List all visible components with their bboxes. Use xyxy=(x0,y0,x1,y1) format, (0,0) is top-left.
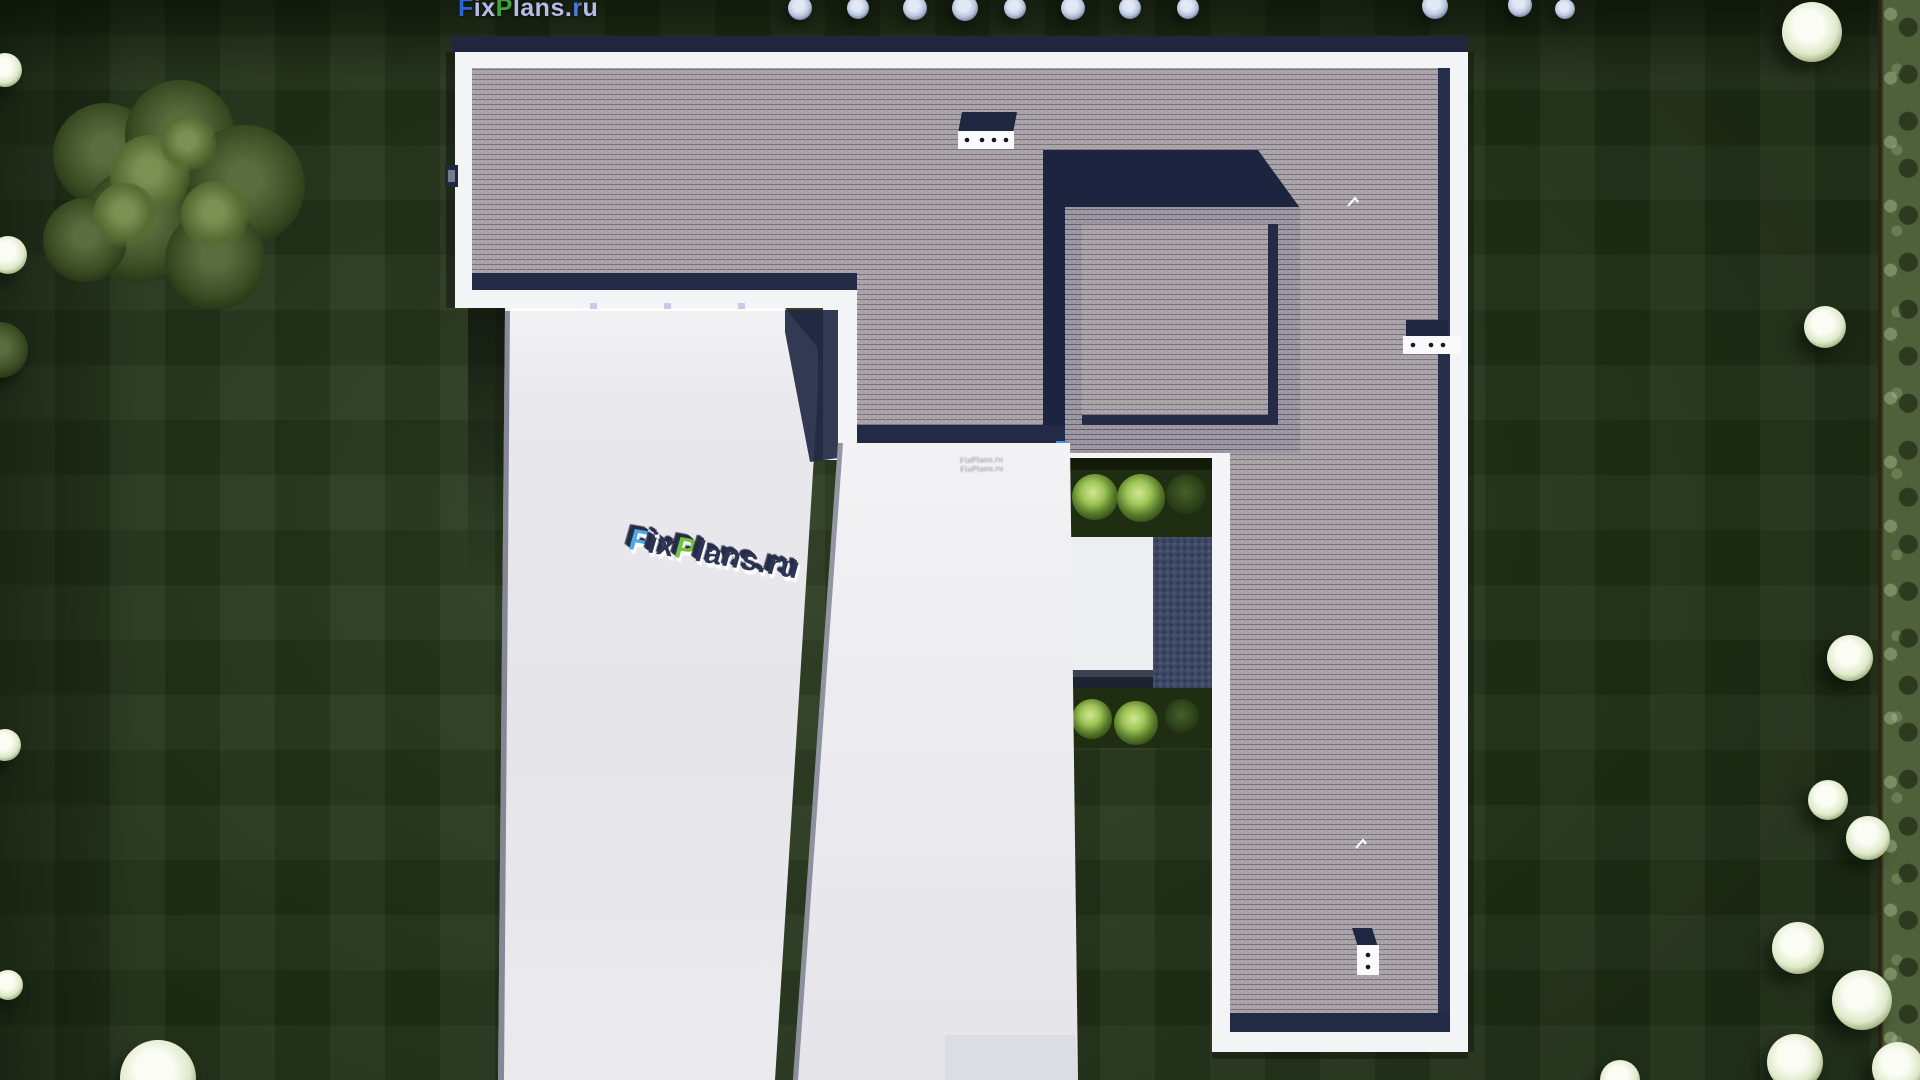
eave-shadow xyxy=(1230,1013,1450,1032)
parapet-shadow xyxy=(452,36,1468,54)
bush-icon xyxy=(1165,699,1199,733)
bush-icon xyxy=(1072,474,1118,520)
drain-mark xyxy=(664,303,671,309)
bush-icon xyxy=(1117,474,1165,522)
logo-letter: u xyxy=(583,0,599,22)
eave-shadow xyxy=(1438,68,1450,1013)
small-watermark: FixPlans.ru FixPlans.ru xyxy=(960,454,1039,475)
eave-shadow xyxy=(472,273,857,290)
hedge-texture xyxy=(1153,537,1212,688)
building-shadow xyxy=(1468,52,1474,1052)
site-logo: FixPlans.ru xyxy=(458,0,598,23)
aerial-render: FixPlans.ru FixPlans.ru FixPlans.ru FixP… xyxy=(0,0,1920,1080)
logo-letter: F xyxy=(458,0,474,22)
parapet-vent xyxy=(445,165,458,187)
building-shadow xyxy=(468,308,508,578)
flat-roof-patch xyxy=(945,1035,1078,1080)
bush-icon xyxy=(1072,699,1112,739)
logo-letter: ix xyxy=(474,0,496,22)
garden-shadow xyxy=(1068,458,1212,470)
bush-icon xyxy=(1114,701,1158,745)
courtyard-inner-shadow xyxy=(1268,224,1278,425)
logo-letter: r xyxy=(572,0,582,22)
drain-mark xyxy=(738,303,745,309)
patio xyxy=(1068,537,1153,677)
building-roof xyxy=(0,0,1920,1080)
roof-vent-top xyxy=(958,112,1017,149)
logo-letter: lans xyxy=(513,0,565,22)
left-flat-roof xyxy=(498,308,818,1080)
building-shadow xyxy=(1212,1052,1468,1059)
patio-shadow xyxy=(1068,670,1153,688)
logo-letter: P xyxy=(496,0,513,22)
courtyard-inner-shadow xyxy=(1082,415,1278,425)
bush-icon xyxy=(1166,474,1206,514)
drain-mark xyxy=(590,303,597,309)
watermark-letter: .ru xyxy=(755,546,805,585)
courtyard-inner xyxy=(1082,224,1278,425)
